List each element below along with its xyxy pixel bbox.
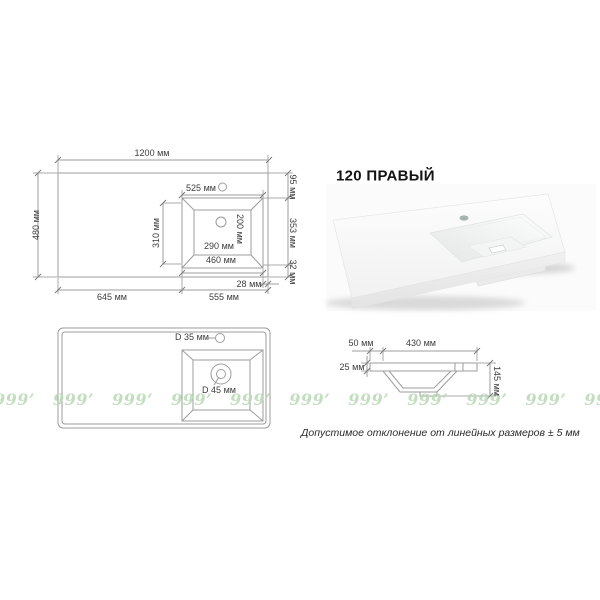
watermark-band: 999’ 999’ 999’ 999’ 999’ 999’ 999’ 999’ … (0, 391, 600, 411)
dim-430-label: 430 мм (406, 338, 436, 348)
dim-480-label: 480 мм (31, 210, 41, 240)
dim-290-label: 290 мм (204, 241, 234, 251)
dim-d45-label: D 45 мм (202, 385, 236, 395)
dim-50-label: 50 мм (349, 338, 374, 348)
dim-460-label: 460 мм (206, 255, 236, 265)
product-photo (325, 184, 596, 311)
dim-25-label: 25 мм (340, 362, 365, 372)
dim-145-label: 145 мм (492, 366, 502, 396)
faucet-hole (460, 215, 469, 220)
product-spec-sheet: 999’ 999’ 999’ 999’ 999’ 999’ 999’ 999’ … (0, 0, 600, 600)
dim-645-label: 645 мм (97, 292, 127, 302)
faucet-hole-symbol (219, 183, 227, 191)
dim-1200-label: 1200 мм (135, 148, 170, 158)
page-title: 120 ПРАВЫЙ (336, 168, 435, 185)
drain-hole-symbol (211, 364, 231, 384)
top-view-drawing (33, 155, 293, 294)
dim-d35-label: D 35 мм (175, 332, 209, 342)
dim-32-label: 32 мм (288, 260, 298, 285)
holes-view-drawing (58, 328, 270, 428)
dim-310-label: 310 мм (151, 218, 161, 248)
dim-28-label: 28 мм (237, 279, 262, 289)
dim-555-label: 555 мм (209, 292, 239, 302)
drain-hole-symbol (216, 217, 226, 227)
technical-drawing-linework (0, 0, 600, 600)
tolerance-note: Допустимое отклонение от линейных размер… (301, 427, 580, 439)
dim-95-label: 95 мм (288, 175, 298, 200)
dim-200-label: 200 мм (235, 214, 245, 244)
faucet-hole-symbol (216, 334, 225, 343)
dim-353-label: 353 мм (288, 218, 298, 248)
dim-525-label: 525 мм (186, 183, 216, 193)
